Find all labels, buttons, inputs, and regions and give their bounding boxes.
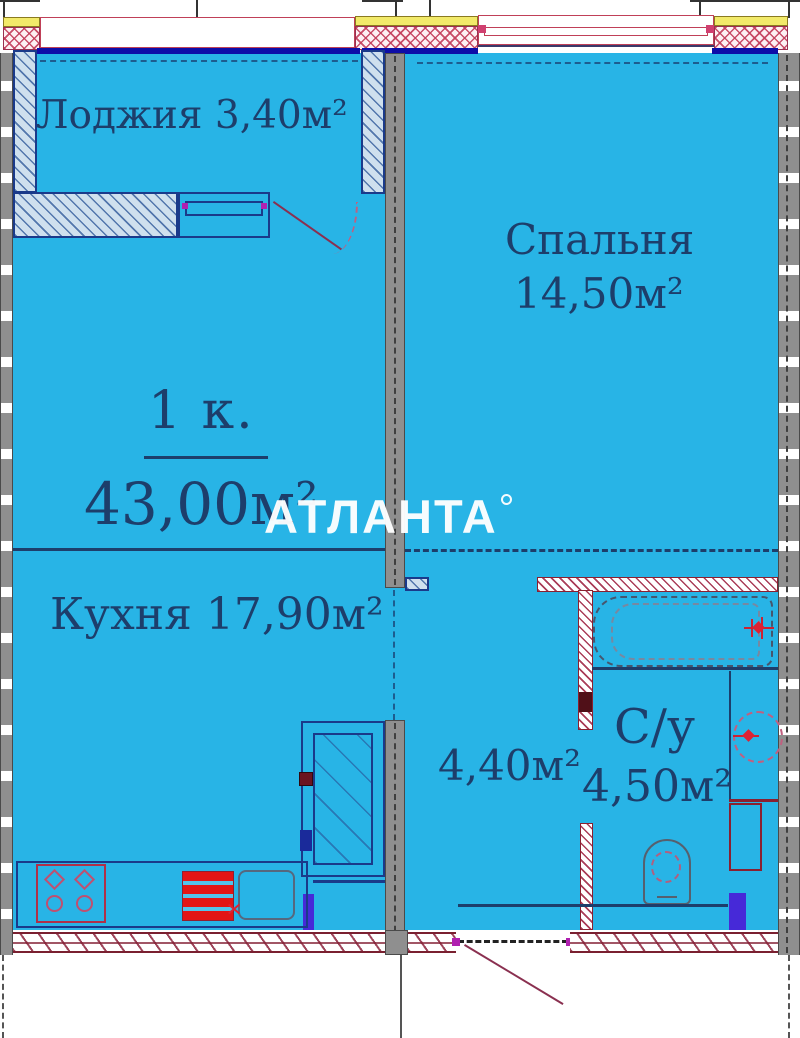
wall-block bbox=[299, 772, 313, 786]
washbasin bbox=[733, 711, 783, 763]
bottom-wall-pier bbox=[385, 930, 408, 955]
window-joint bbox=[706, 25, 714, 33]
stove bbox=[36, 864, 106, 923]
bathroom-area-label: 4,50м² bbox=[582, 764, 732, 810]
bathtub-inner bbox=[611, 603, 760, 660]
bathroom-left-wall bbox=[578, 590, 593, 730]
toilet-base-line bbox=[657, 896, 677, 898]
bathtub-edge-line bbox=[592, 667, 778, 670]
top-border-line bbox=[690, 0, 800, 2]
kitchen-appliance bbox=[182, 871, 234, 921]
kitchen-label: Кухня 17,90м² bbox=[50, 592, 384, 638]
exterior-wall-edge bbox=[712, 48, 778, 54]
zone-line bbox=[13, 548, 385, 551]
loggia-window-sill bbox=[178, 192, 270, 238]
exterior-wall-right bbox=[778, 53, 800, 955]
wardrobe-base-line bbox=[313, 880, 385, 883]
niche-shelf-line bbox=[729, 799, 778, 802]
burner-icon bbox=[74, 869, 95, 890]
loggia-label: Лоджия 3,40м² bbox=[36, 96, 348, 137]
bathroom-name-label: С/у bbox=[614, 702, 695, 752]
burner-icon bbox=[76, 895, 93, 912]
column bbox=[3, 27, 40, 50]
burner-icon bbox=[44, 869, 65, 890]
column-cap bbox=[3, 17, 40, 27]
window-joint bbox=[261, 203, 267, 209]
bathroom-lower-partition bbox=[580, 823, 593, 930]
bottom-wall bbox=[570, 932, 778, 953]
apartment-rooms-label: 1 к. bbox=[148, 384, 255, 439]
hallway-area-label: 4,40м² bbox=[438, 744, 581, 788]
extension-tick bbox=[429, 0, 431, 16]
hall-threshold-line bbox=[458, 904, 728, 907]
watermark-text: АТЛАНТА bbox=[264, 490, 498, 543]
wall-centerline bbox=[394, 723, 396, 952]
bathroom-top-wall bbox=[537, 577, 778, 592]
registered-mark-icon bbox=[501, 494, 512, 505]
burner-icon bbox=[46, 895, 63, 912]
bedroom-name-label: Спальня bbox=[505, 218, 694, 262]
loggia-side-pier bbox=[13, 50, 37, 193]
extension-line bbox=[788, 955, 790, 1038]
loggia-window-frame bbox=[185, 201, 263, 216]
entry-door-leaf bbox=[464, 944, 564, 1005]
zone-line-dashed bbox=[405, 549, 778, 552]
wall-block bbox=[300, 830, 312, 851]
bedroom-ceiling-dash bbox=[417, 62, 768, 64]
exterior-wall-left bbox=[0, 53, 13, 955]
wall-stub bbox=[405, 577, 429, 591]
column-cap bbox=[714, 16, 788, 26]
loggia-ceiling-dash bbox=[40, 60, 358, 62]
riser-block bbox=[729, 893, 746, 930]
entry-door-opening bbox=[458, 940, 568, 943]
apartment-label-underline bbox=[144, 456, 268, 459]
kitchen-sink bbox=[238, 870, 295, 920]
window-joint bbox=[478, 25, 486, 33]
extension-line bbox=[2, 955, 4, 1038]
toilet-bowl bbox=[651, 851, 681, 883]
wall-block bbox=[579, 692, 592, 712]
loggia-partition-wall bbox=[13, 192, 178, 238]
top-border-line bbox=[0, 0, 40, 2]
extension-tick bbox=[788, 0, 790, 18]
passage-opening-dash bbox=[393, 590, 395, 720]
door-jamb bbox=[452, 938, 460, 946]
loggia-side-pier bbox=[361, 50, 385, 194]
column-cap bbox=[355, 16, 478, 26]
extension-tick bbox=[3, 0, 5, 18]
bottom-wall bbox=[408, 932, 456, 953]
wall-kitchen-hall bbox=[385, 720, 405, 955]
window-joint bbox=[182, 203, 188, 209]
extension-line bbox=[400, 955, 402, 1038]
column bbox=[355, 26, 478, 50]
bedroom-window-frame bbox=[484, 27, 708, 36]
extension-tick bbox=[196, 0, 198, 18]
bottom-wall bbox=[13, 932, 385, 953]
wardrobe-inner bbox=[313, 733, 373, 865]
loggia-glazing bbox=[40, 17, 355, 48]
bedroom-window-sill bbox=[478, 45, 714, 47]
wall-centerline bbox=[786, 55, 788, 953]
exterior-wall-edge bbox=[37, 48, 360, 54]
bedroom-area-label: 14,50м² bbox=[514, 272, 684, 316]
column bbox=[714, 26, 788, 50]
floor-plan: Лоджия 3,40м² Спальня 14,50м² 1 к. 43,00… bbox=[0, 0, 800, 1038]
bathroom-cabinet bbox=[729, 803, 762, 871]
agency-watermark: АТЛАНТА bbox=[264, 489, 512, 544]
